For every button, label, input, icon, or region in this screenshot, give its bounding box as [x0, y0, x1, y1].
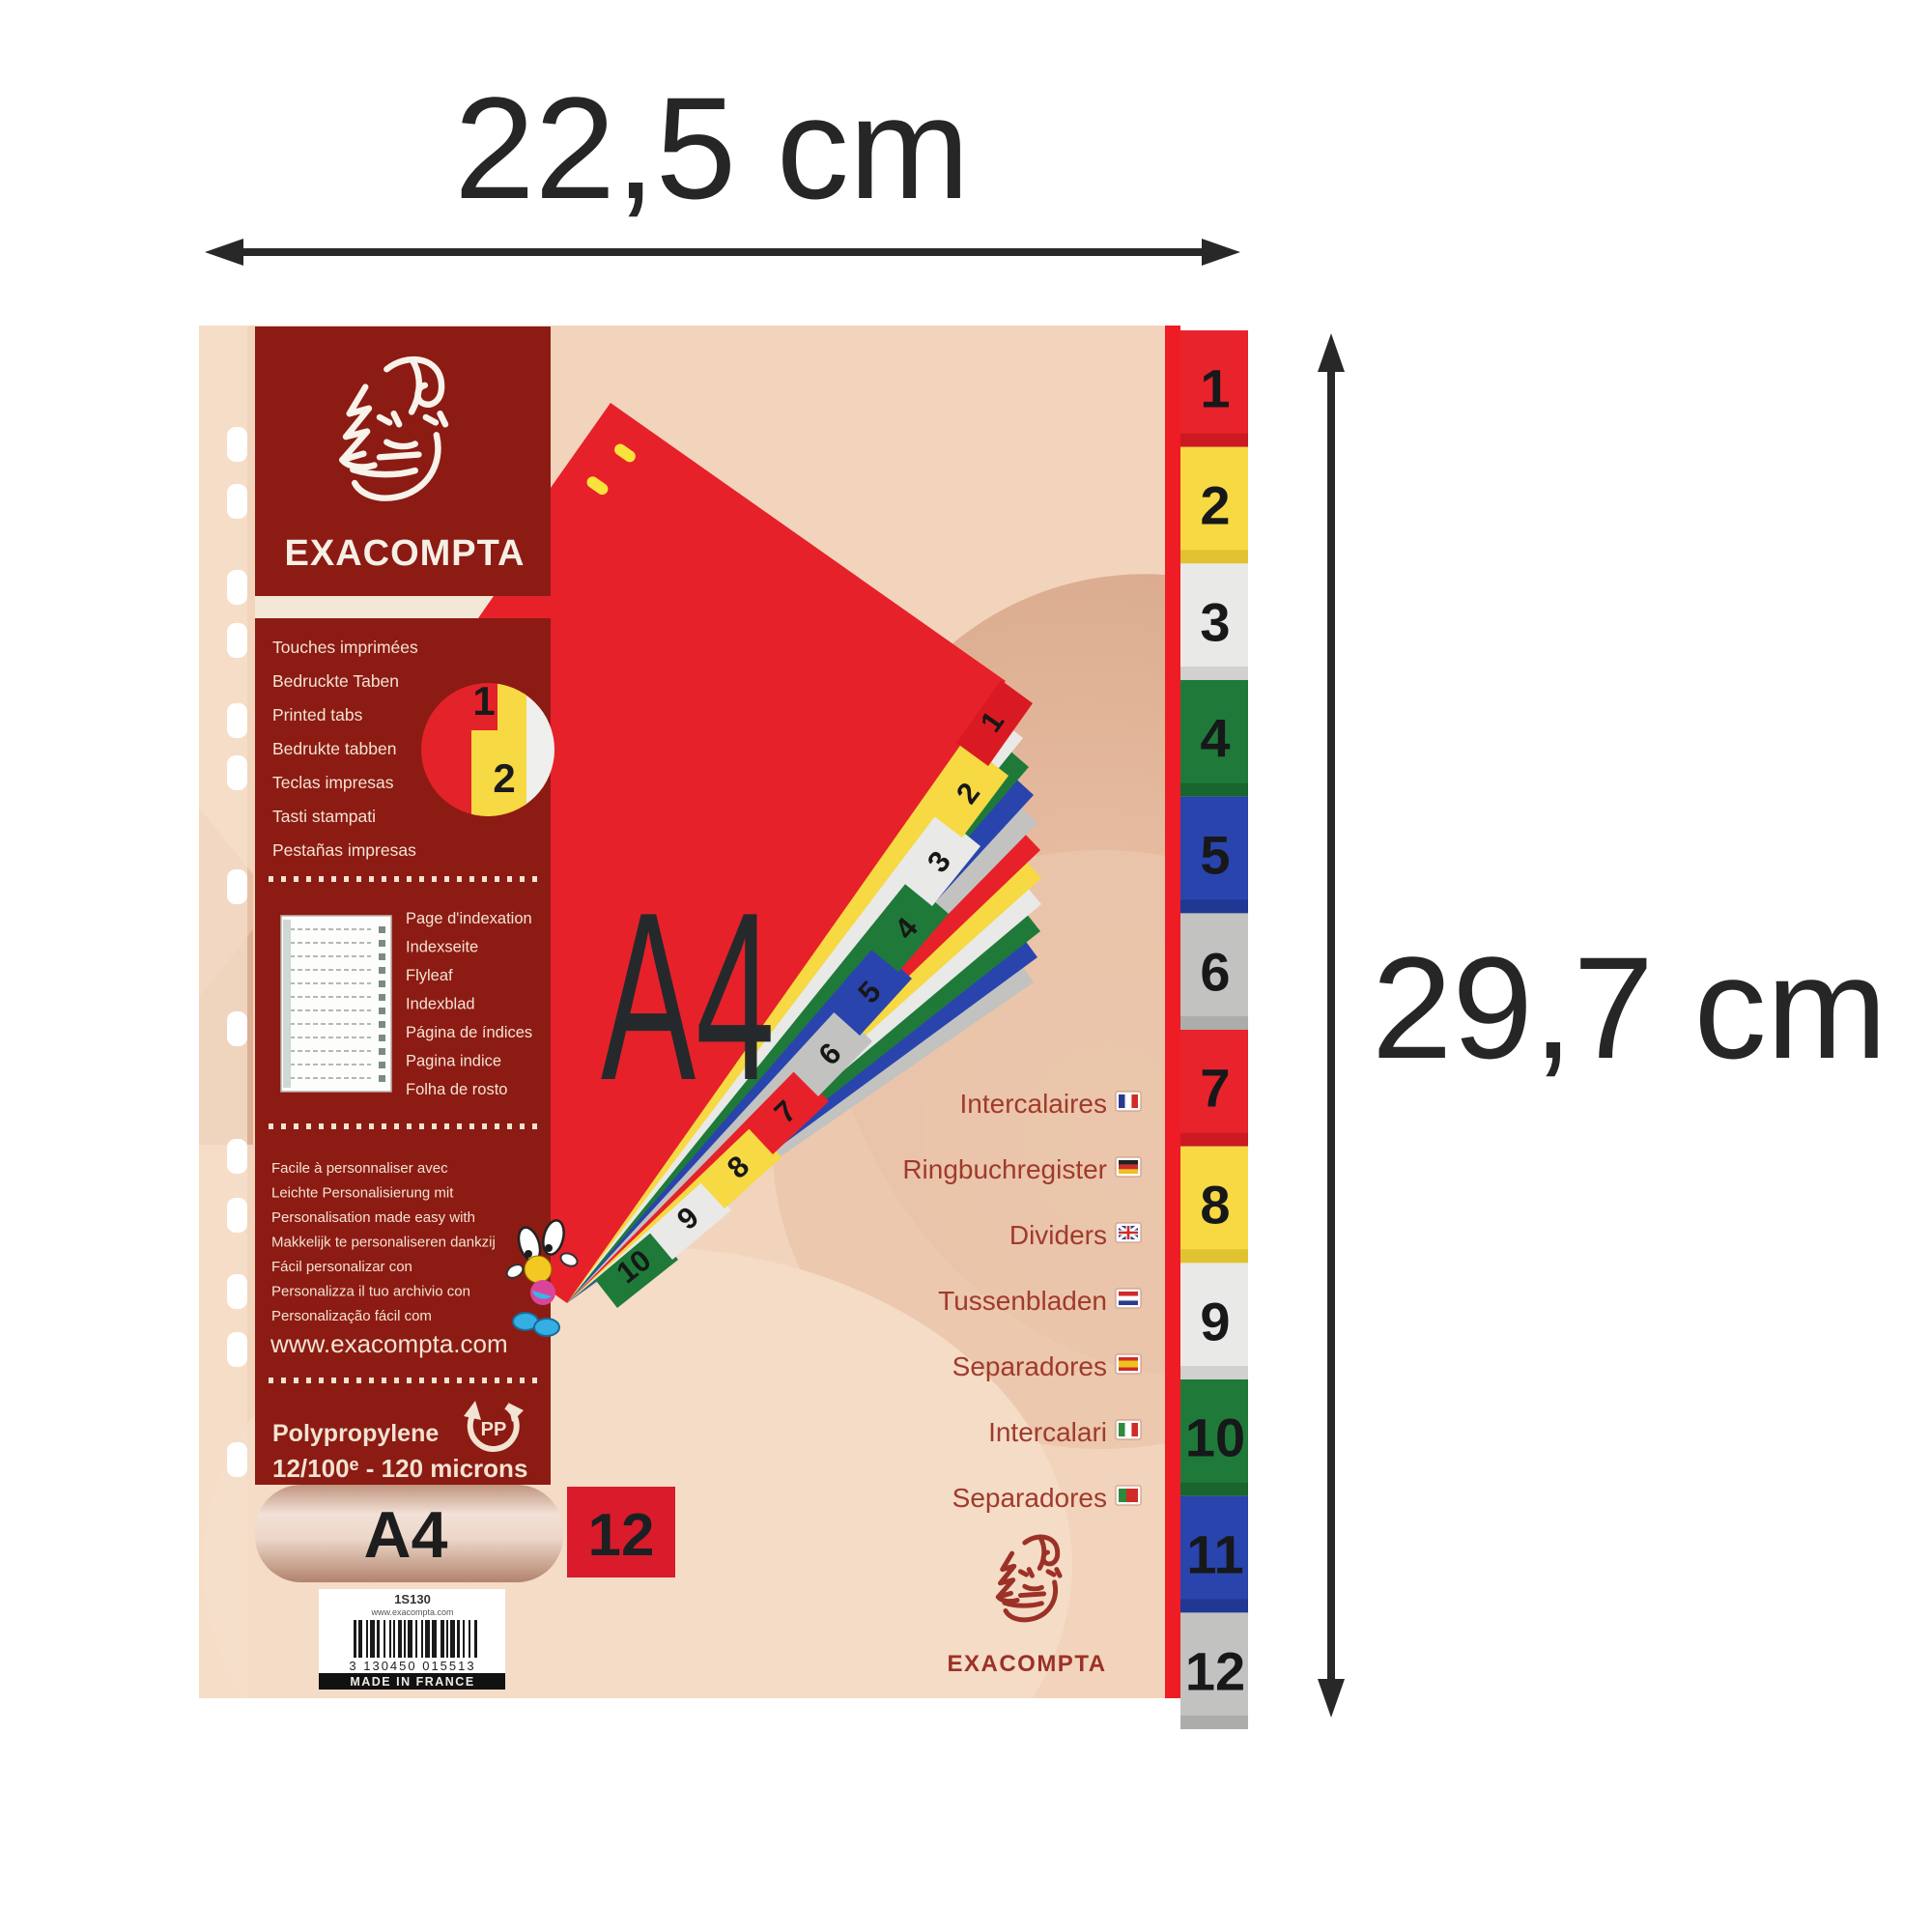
- svg-text:Intercalari: Intercalari: [988, 1417, 1107, 1447]
- svg-text:Dividers: Dividers: [1009, 1220, 1107, 1250]
- svg-text:Separadores: Separadores: [952, 1483, 1107, 1513]
- svg-text:Makkelijk te personaliseren da: Makkelijk te personaliseren dankzij: [271, 1235, 496, 1251]
- svg-text:www.exacompta.com: www.exacompta.com: [370, 1607, 453, 1617]
- svg-text:Indexseite: Indexseite: [406, 939, 478, 956]
- svg-text:A4: A4: [364, 1498, 448, 1572]
- svg-text:29,7 cm: 29,7 cm: [1372, 926, 1888, 1089]
- svg-text:2: 2: [1200, 475, 1230, 536]
- svg-text:Intercalaires: Intercalaires: [959, 1089, 1107, 1119]
- svg-text:EXACOMPTA: EXACOMPTA: [947, 1651, 1106, 1677]
- svg-text:Flyleaf: Flyleaf: [406, 967, 453, 984]
- svg-text:Personalizza il tuo archivio c: Personalizza il tuo archivio con: [271, 1284, 470, 1300]
- svg-text:7: 7: [1200, 1058, 1230, 1119]
- svg-text:12/100e - 120 microns: 12/100e - 120 microns: [272, 1454, 527, 1483]
- svg-text:11: 11: [1186, 1524, 1243, 1585]
- svg-text:22,5 cm: 22,5 cm: [454, 67, 970, 229]
- svg-text:5: 5: [1200, 825, 1230, 886]
- svg-text:PP: PP: [481, 1419, 507, 1440]
- svg-text:Polypropylene: Polypropylene: [272, 1420, 439, 1447]
- svg-text:9: 9: [1200, 1292, 1230, 1352]
- svg-text:2: 2: [493, 755, 515, 801]
- svg-text:4: 4: [1200, 708, 1230, 769]
- svg-text:Teclas impresas: Teclas impresas: [272, 773, 394, 792]
- svg-text:Personalisation made easy with: Personalisation made easy with: [271, 1209, 475, 1226]
- svg-text:Personalização fácil com: Personalização fácil com: [271, 1308, 432, 1324]
- svg-text:A4: A4: [601, 862, 775, 1130]
- svg-text:Ringbuchregister: Ringbuchregister: [902, 1154, 1107, 1184]
- svg-text:Touches imprimées: Touches imprimées: [272, 638, 418, 657]
- svg-text:Tasti stampati: Tasti stampati: [272, 807, 376, 826]
- svg-text:Folha de rosto: Folha de rosto: [406, 1081, 507, 1098]
- svg-text:Page d'indexation: Page d'indexation: [406, 910, 532, 927]
- svg-text:12: 12: [588, 1502, 655, 1569]
- svg-text:EXACOMPTA: EXACOMPTA: [285, 533, 526, 574]
- svg-text:Pestañas impresas: Pestañas impresas: [272, 840, 416, 860]
- svg-text:Facile à personnaliser avec: Facile à personnaliser avec: [271, 1160, 448, 1177]
- svg-text:Bedrukte tabben: Bedrukte tabben: [272, 739, 396, 758]
- svg-text:10: 10: [1185, 1407, 1245, 1468]
- svg-text:8: 8: [1200, 1175, 1230, 1236]
- svg-text:1: 1: [472, 678, 495, 724]
- svg-text:MADE IN FRANCE: MADE IN FRANCE: [350, 1675, 474, 1689]
- svg-text:Tussenbladen: Tussenbladen: [938, 1286, 1107, 1316]
- svg-text:Leichte Personalisierung mit: Leichte Personalisierung mit: [271, 1185, 454, 1202]
- svg-text:Indexblad: Indexblad: [406, 996, 475, 1013]
- svg-text:Printed tabs: Printed tabs: [272, 705, 363, 724]
- svg-text:1S130: 1S130: [394, 1592, 431, 1606]
- svg-text:Fácil personalizar con: Fácil personalizar con: [271, 1259, 412, 1275]
- svg-text:3 130450 015513: 3 130450 015513: [349, 1659, 475, 1673]
- svg-text:6: 6: [1200, 942, 1230, 1003]
- svg-text:Separadores: Separadores: [952, 1351, 1107, 1381]
- svg-text:Página de índices: Página de índices: [406, 1024, 532, 1041]
- svg-text:12: 12: [1185, 1641, 1245, 1702]
- svg-text:Pagina indice: Pagina indice: [406, 1053, 501, 1070]
- svg-text:1: 1: [1200, 358, 1230, 419]
- svg-text:3: 3: [1200, 592, 1230, 653]
- svg-text:www.exacompta.com: www.exacompta.com: [270, 1329, 508, 1358]
- svg-text:Bedruckte Taben: Bedruckte Taben: [272, 671, 399, 691]
